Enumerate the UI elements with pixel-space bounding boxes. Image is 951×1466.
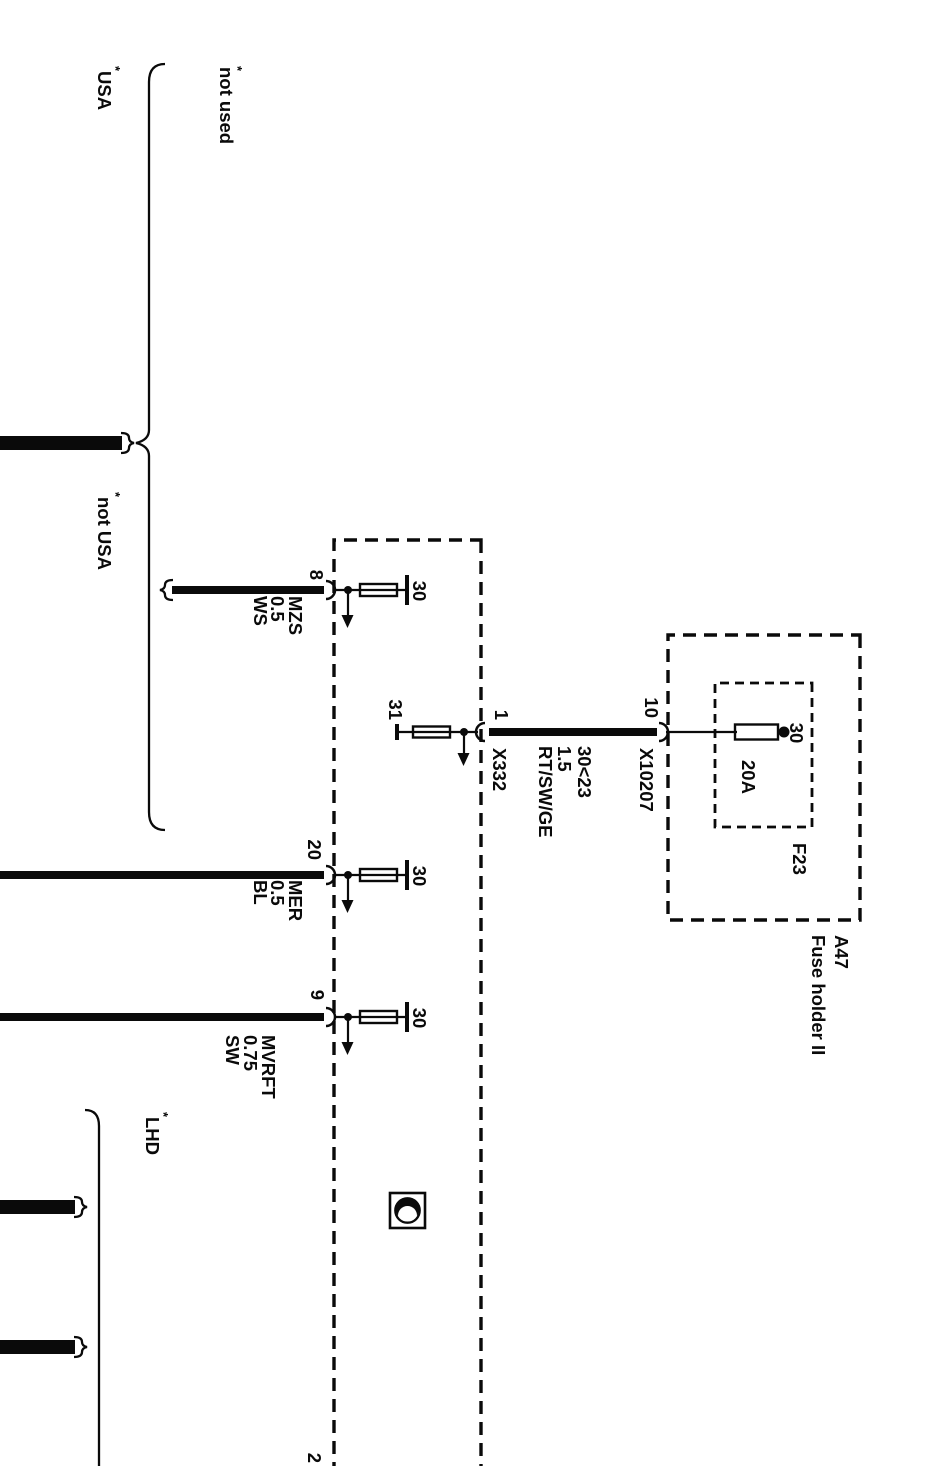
pin-number-label: 2	[304, 1453, 325, 1463]
fuse-symbol	[735, 725, 778, 740]
direction-arrow-icon	[458, 753, 470, 766]
terminal-label: 31	[385, 699, 406, 720]
wire-code-label: MER	[285, 880, 306, 921]
fuse-f23-box	[715, 683, 812, 827]
connector-x10207-label: X10207	[636, 748, 657, 812]
pin-number-label: 9	[307, 990, 328, 1000]
wire-code-label: MVRFT	[258, 1035, 279, 1099]
wire-continuation-curl-icon	[160, 580, 173, 600]
terminal-label: 30	[409, 581, 430, 602]
pin-number-label: 8	[306, 570, 327, 580]
terminal-label: 30	[409, 866, 430, 887]
terminal-label: 30	[409, 1008, 430, 1029]
wire-size-label: 1.5	[554, 746, 575, 772]
pin-number-label: 20	[304, 839, 325, 860]
lamp-symbol-icon	[390, 1193, 425, 1228]
variant-group-usa: * not used * USA * not USA	[0, 64, 245, 830]
variant-brace	[85, 1110, 99, 1466]
not-usa-label: not USA	[94, 497, 115, 570]
rotated-diagram-canvas: * not used * USA * not USA * LHD	[0, 0, 951, 1466]
wiring-diagram-page: * not used * USA * not USA * LHD	[0, 0, 951, 1466]
wire-continuation-curl-icon	[74, 1337, 87, 1357]
fuse-rating-label: 20A	[738, 760, 759, 794]
wire-color-label: WS	[250, 596, 271, 626]
wire-continuation-curl-icon	[121, 433, 134, 453]
fuse-id-label: F23	[789, 843, 810, 875]
pin-number-label: 10	[641, 697, 662, 718]
not-used-label: not used	[216, 67, 237, 144]
track-ref-label: 30<23	[574, 746, 595, 798]
terminal-label: 30	[786, 723, 807, 744]
terminal-30-feed-pin9: 9 30 MVRFT 0.75 SW	[0, 990, 430, 1100]
wire-continuation-curl-icon	[74, 1197, 87, 1217]
lhd-label: LHD	[142, 1117, 163, 1155]
direction-arrow-icon	[342, 615, 354, 628]
direction-arrow-icon	[342, 1042, 354, 1055]
fuse-holder-designation-label: A47	[831, 935, 852, 969]
wire-color-label: RT/SW/GE	[535, 746, 556, 837]
fuse-holder-name-label: Fuse holder II	[808, 935, 829, 1055]
terminal-30-feed-pin8: 8 30 MZS 0.5 WS	[160, 570, 430, 635]
variant-group-lhd: * LHD	[0, 1110, 171, 1466]
wire-code-label: MZS	[285, 596, 306, 635]
pin-connector-icon	[326, 1008, 335, 1026]
terminal-31-circuit: 31 1 X332 30<23 1.5 RT/SW/GE	[385, 699, 657, 837]
wire-color-label: SW	[222, 1035, 243, 1065]
fuse-holder-a47: 10 X10207 30 20A F23 A47 Fuse holder II	[636, 635, 860, 1055]
wire-size-label: 0.75	[240, 1035, 261, 1071]
fuse-holder-box	[668, 635, 860, 920]
variant-brace	[136, 64, 165, 830]
connector-x332-label: X332	[489, 748, 510, 791]
pin-number-label: 1	[491, 710, 512, 720]
direction-arrow-icon	[342, 900, 354, 913]
wire-color-label: BL	[250, 880, 271, 905]
usa-label: USA	[94, 71, 115, 110]
wiring-diagram: * not used * USA * not USA * LHD	[0, 0, 951, 1466]
terminal-30-feed-pin20: 20 30 MER 0.5 BL	[0, 839, 430, 921]
